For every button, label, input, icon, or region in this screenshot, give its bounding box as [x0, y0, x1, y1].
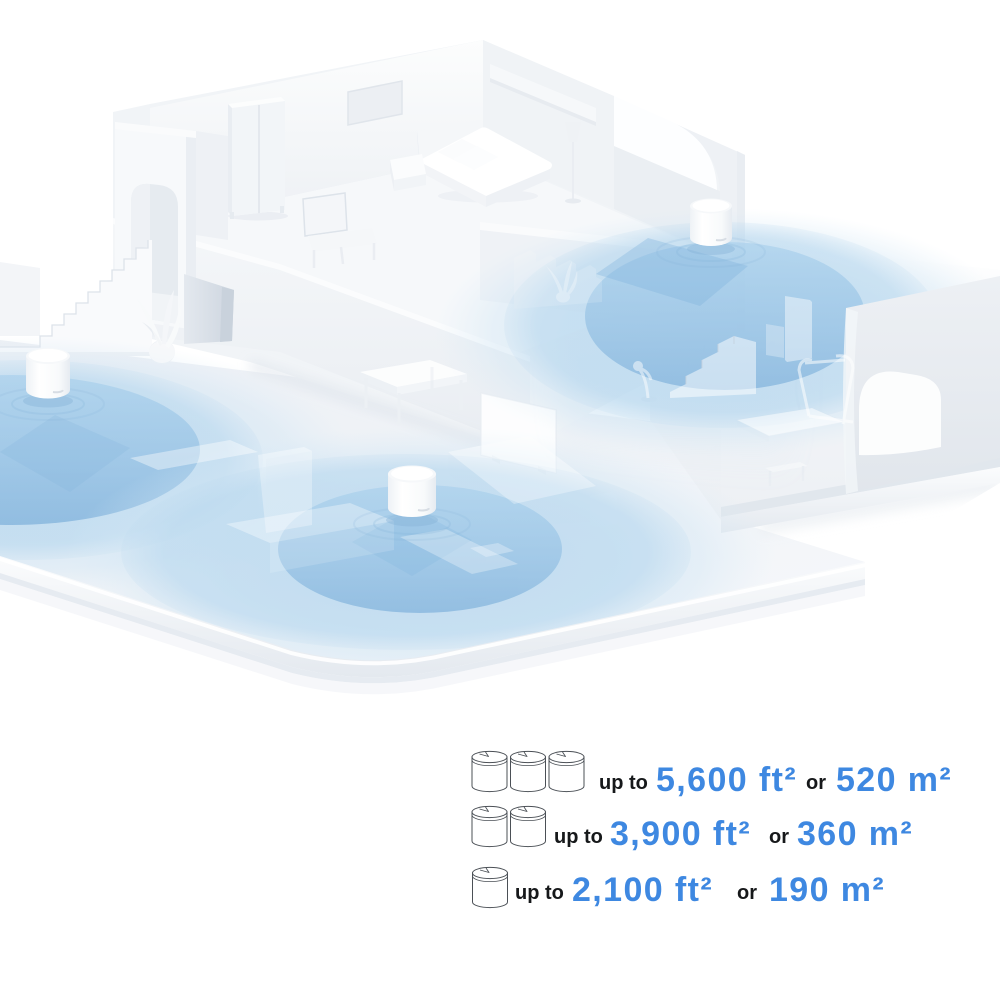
svg-text:or: or: [769, 826, 789, 848]
svg-text:or: or: [737, 882, 757, 904]
svg-text:520 m²: 520 m²: [836, 761, 952, 799]
svg-text:3,900 ft²: 3,900 ft²: [610, 815, 751, 853]
svg-text:360 m²: 360 m²: [797, 815, 913, 853]
svg-text:up to: up to: [554, 826, 603, 848]
svg-text:190 m²: 190 m²: [769, 871, 885, 909]
svg-text:up to: up to: [515, 882, 564, 904]
svg-text:up to: up to: [599, 772, 648, 794]
svg-text:5,600 ft²: 5,600 ft²: [656, 761, 797, 799]
svg-text:2,100 ft²: 2,100 ft²: [572, 871, 713, 909]
svg-text:or: or: [806, 772, 826, 794]
